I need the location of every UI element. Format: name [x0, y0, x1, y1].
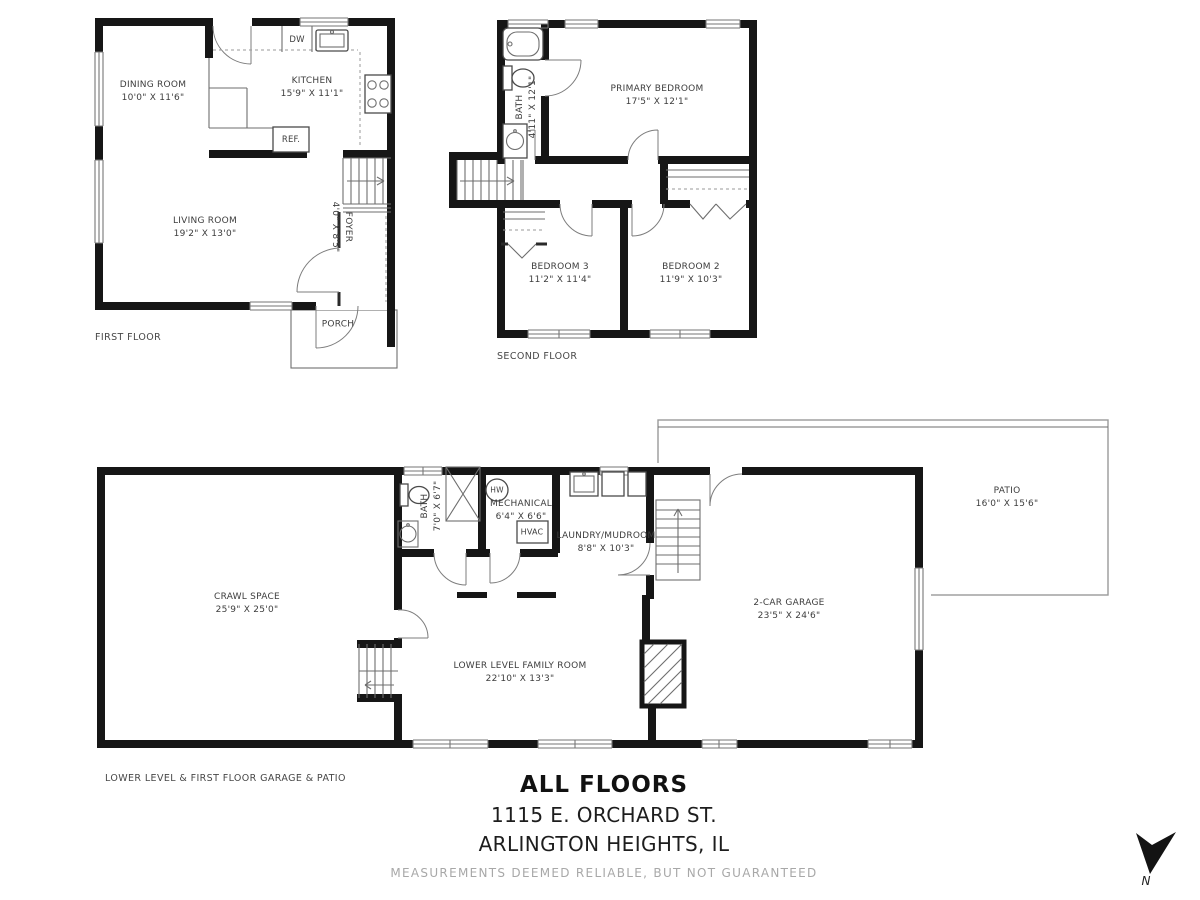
- washer-icon: [602, 472, 624, 496]
- porch-label: PORCH: [322, 318, 355, 331]
- foyer-label: FOYER 4'0" X 8'5": [328, 202, 354, 253]
- second-floor-caption: SECOND FLOOR: [497, 351, 577, 362]
- north-label: N: [1142, 874, 1151, 888]
- fireplace-icon: [642, 642, 684, 706]
- laundry-mudroom-label: LAUNDRY/MUDROOM 8'8" X 10'3": [556, 530, 655, 556]
- mechanical-label: MECHANICAL 6'4" X 6'6": [490, 498, 552, 524]
- dining-room-label: DINING ROOM 10'0" X 11'6": [120, 79, 186, 105]
- floor-plan-image: DINING ROOM 10'0" X 11'6" KITCHEN 15'9" …: [0, 0, 1200, 900]
- refrigerator-label: REF.: [282, 135, 300, 145]
- page-title: ALL FLOORS: [479, 772, 730, 798]
- kitchen-label: KITCHEN 15'9" X 11'1": [281, 75, 344, 101]
- disclaimer-text: MEASUREMENTS DEEMED RELIABLE, BUT NOT GU…: [390, 866, 817, 880]
- lower-bath-label: BATH 7'0" X 6'7": [419, 481, 445, 532]
- patio-label: PATIO 16'0" X 15'6": [976, 485, 1039, 511]
- lower-level-caption: LOWER LEVEL & FIRST FLOOR GARAGE & PATIO: [105, 773, 346, 784]
- crawl-space-label: CRAWL SPACE 25'9" X 25'0": [214, 591, 280, 617]
- title-block: ALL FLOORS 1115 E. ORCHARD ST. ARLINGTON…: [479, 772, 730, 856]
- second-floor-drawing: [445, 16, 757, 342]
- water-heater-label: HW: [490, 486, 503, 495]
- living-room-label: LIVING ROOM 19'2" X 13'0": [173, 215, 237, 241]
- hvac-label: HVAC: [521, 528, 544, 537]
- address-line2: ARLINGTON HEIGHTS, IL: [479, 832, 730, 856]
- garage-label: 2-CAR GARAGE 23'5" X 24'6": [753, 597, 824, 623]
- bedroom2-label: BEDROOM 2 11'9" X 10'3": [660, 261, 723, 287]
- bathtub-icon: [503, 28, 543, 60]
- dryer-icon: [628, 472, 646, 496]
- kitchen-sink-icon: [316, 30, 348, 51]
- stove-icon: [365, 75, 391, 113]
- lower-level-drawing: [93, 420, 1108, 752]
- floorplan-linework: [0, 0, 1200, 900]
- family-room-label: LOWER LEVEL FAMILY ROOM 22'10" X 13'3": [454, 660, 587, 686]
- primary-bedroom-label: PRIMARY BEDROOM 17'5" X 12'1": [610, 83, 703, 109]
- second-bath-label: BATH 4'11" X 12'1": [514, 76, 540, 139]
- north-arrow-icon: [1136, 832, 1176, 874]
- laundry-sink-icon: [570, 472, 598, 496]
- first-floor-caption: FIRST FLOOR: [95, 332, 161, 343]
- first-floor-drawing: [95, 18, 397, 368]
- address-line1: 1115 E. ORCHARD ST.: [479, 803, 730, 827]
- bedroom3-label: BEDROOM 3 11'2" X 11'4": [529, 261, 592, 287]
- dishwasher-label: DW: [289, 35, 304, 45]
